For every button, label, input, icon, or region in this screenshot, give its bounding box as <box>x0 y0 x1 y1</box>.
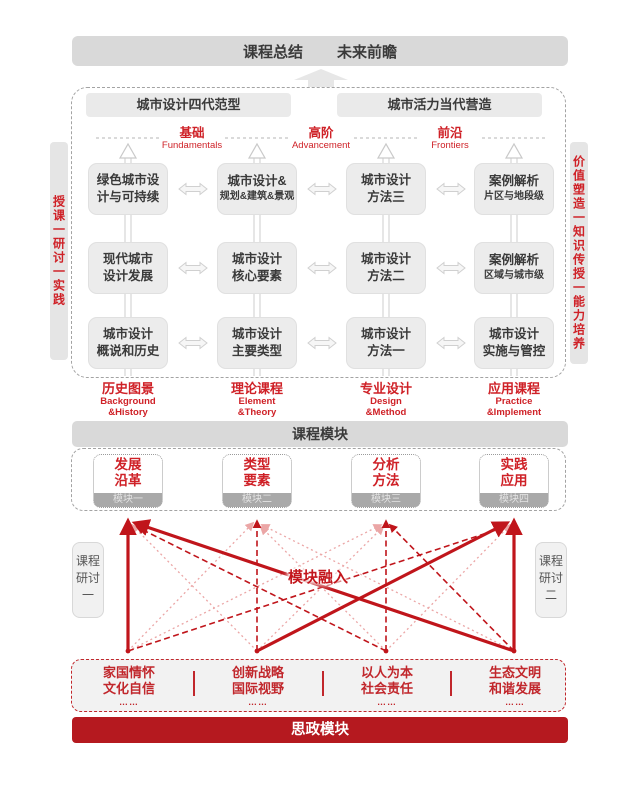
ideology-divider <box>193 671 195 696</box>
course-structure-diagram: 课程总结 未来前瞻 城市设计四代范型 城市活力当代营造 基础 Fundament… <box>0 0 639 796</box>
course-box: 案例解析片区与地段级 <box>474 163 554 215</box>
column-footer: 专业设计 Design &Method <box>321 381 451 418</box>
fusion-label: 模块融入 <box>252 566 384 587</box>
ideology-item: 家国情怀 文化自信 …… <box>72 665 186 707</box>
up-arrow-icon <box>294 69 348 80</box>
double-arrow-icon <box>178 261 208 275</box>
ideology-item: 以人为本 社会责任 …… <box>330 665 444 707</box>
course-box: 城市设计实施与管控 <box>474 317 554 369</box>
ideology-panel: 家国情怀 文化自信 …… 创新战略 国际视野 …… 以人为本 社会责任 …… 生… <box>71 659 566 712</box>
course-box: 城市设计概说和历史 <box>88 317 168 369</box>
up-arrow-icon <box>308 80 334 87</box>
value-goal-sidebar: 价值塑造一知识传授一能力培养 <box>570 142 588 364</box>
column-footer: 应用课程 Practice &Implement <box>449 381 579 418</box>
ideology-divider <box>450 671 452 696</box>
module-card: 类型要素 模块二 <box>222 454 292 508</box>
module-tag: 模块三 <box>352 493 420 507</box>
summary-right: 未来前瞻 <box>337 41 397 62</box>
course-module-bar: 课程模块 <box>72 421 568 447</box>
module-tag: 模块一 <box>94 493 162 507</box>
double-arrow-icon <box>178 336 208 350</box>
ideology-item: 创新战略 国际视野 …… <box>201 665 315 707</box>
module-card: 发展沿革 模块一 <box>93 454 163 508</box>
ideology-module-bar: 思政模块 <box>72 717 568 743</box>
double-arrow-icon <box>307 182 337 196</box>
double-arrow-icon <box>178 182 208 196</box>
course-box: 城市设计方法一 <box>346 317 426 369</box>
course-box: 城市设计方法三 <box>346 163 426 215</box>
module-card: 实践应用 模块四 <box>479 454 549 508</box>
course-box: 城市设计&规划&建筑&景观 <box>217 163 297 215</box>
ideology-divider <box>322 671 324 696</box>
course-box: 城市设计主要类型 <box>217 317 297 369</box>
summary-left: 课程总结 <box>243 41 303 62</box>
double-arrow-icon <box>307 261 337 275</box>
ideology-item: 生态文明 和谐发展 …… <box>458 665 572 707</box>
module-tag: 模块二 <box>223 493 291 507</box>
double-arrow-icon <box>436 261 466 275</box>
module-card: 分析方法 模块三 <box>351 454 421 508</box>
course-box: 案例解析区域与城市级 <box>474 242 554 294</box>
course-box: 城市设计方法二 <box>346 242 426 294</box>
course-box: 现代城市设计发展 <box>88 242 168 294</box>
column-footer: 历史图景 Background &History <box>63 381 193 418</box>
teaching-mode-sidebar: 授课一研讨一实践 <box>50 142 68 360</box>
summary-bar: 课程总结 未来前瞻 <box>72 36 568 66</box>
double-arrow-icon <box>307 336 337 350</box>
course-box: 城市设计核心要素 <box>217 242 297 294</box>
module-tag: 模块四 <box>480 493 548 507</box>
double-arrow-icon <box>436 336 466 350</box>
column-footer: 理论课程 Element &Theory <box>192 381 322 418</box>
double-arrow-icon <box>436 182 466 196</box>
course-box: 绿色城市设计与可持续 <box>88 163 168 215</box>
